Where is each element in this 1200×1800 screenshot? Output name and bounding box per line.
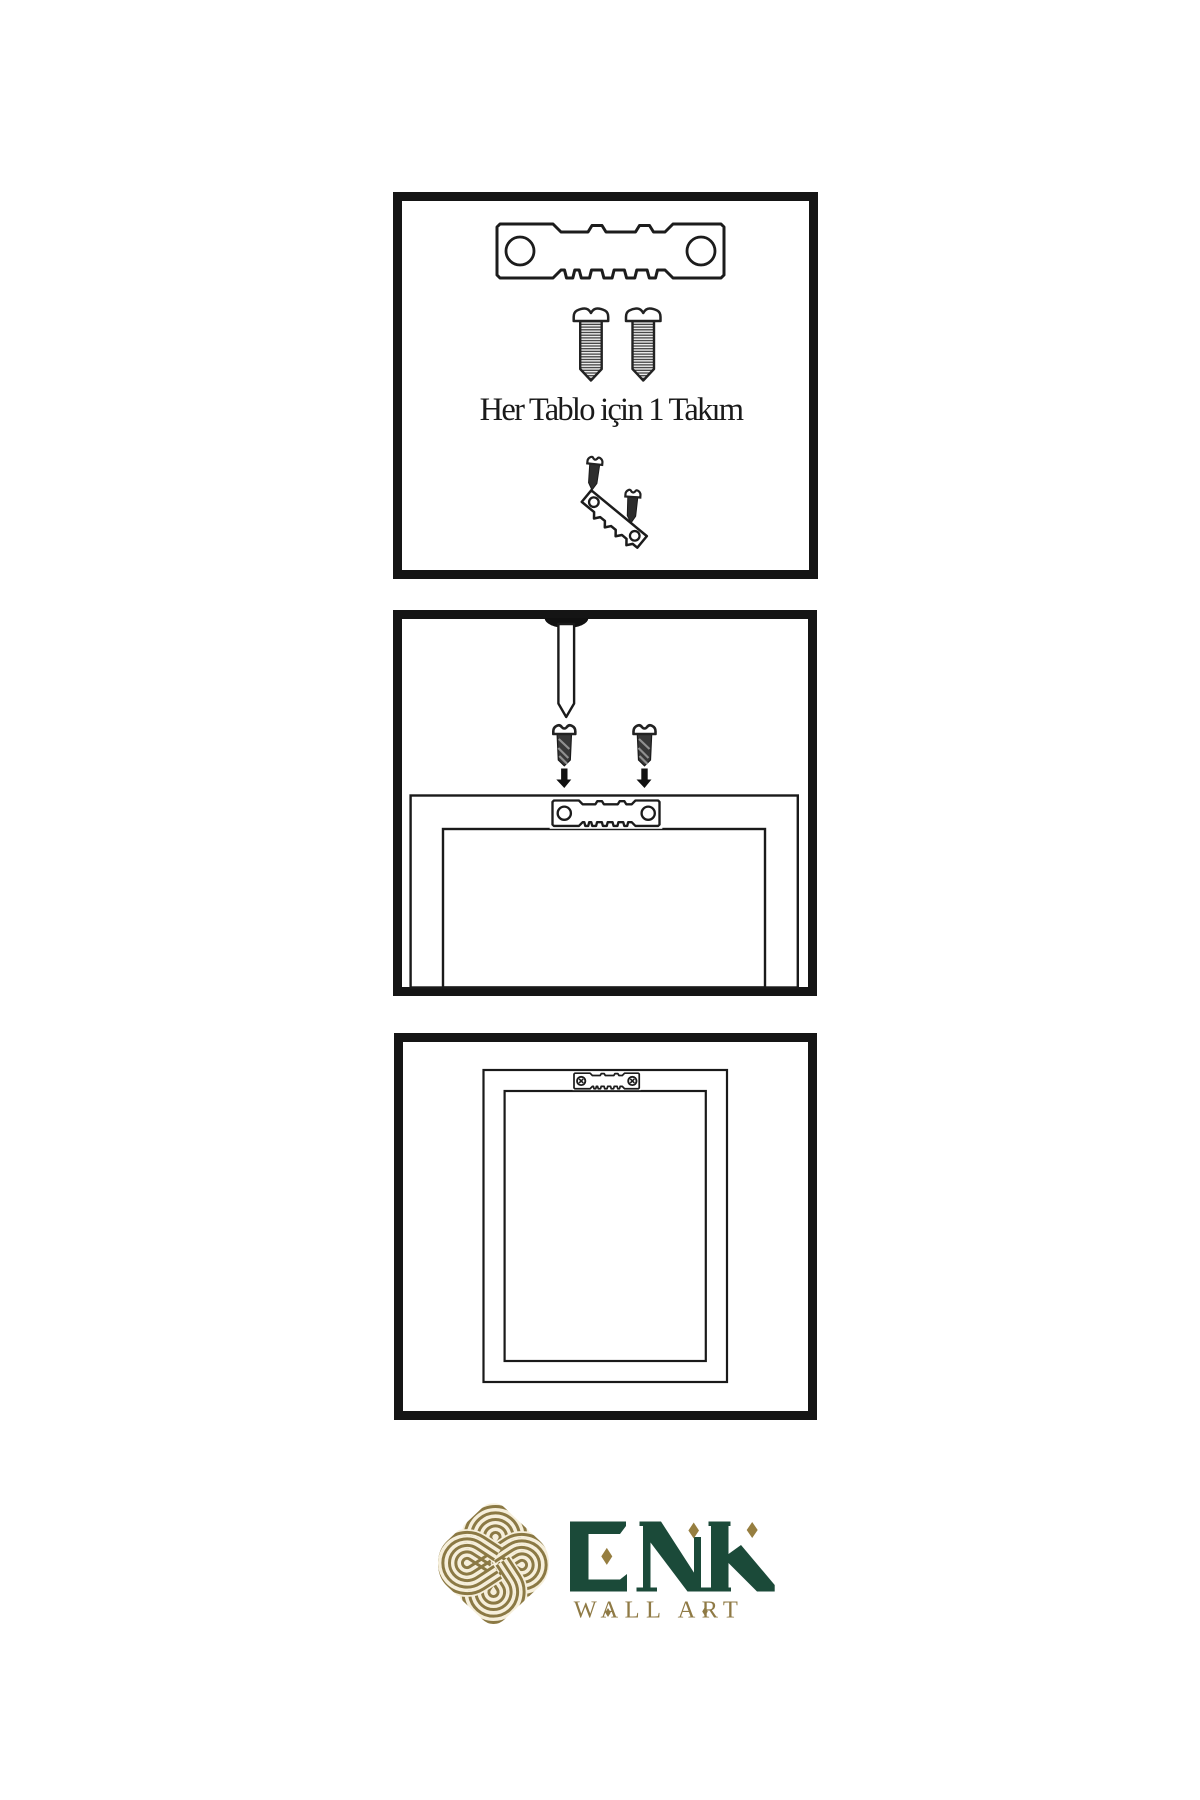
svg-text:WALL ART: WALL ART	[574, 1597, 745, 1624]
svg-text:Her Tablo için 1 Takım: Her Tablo için 1 Takım	[480, 392, 744, 428]
